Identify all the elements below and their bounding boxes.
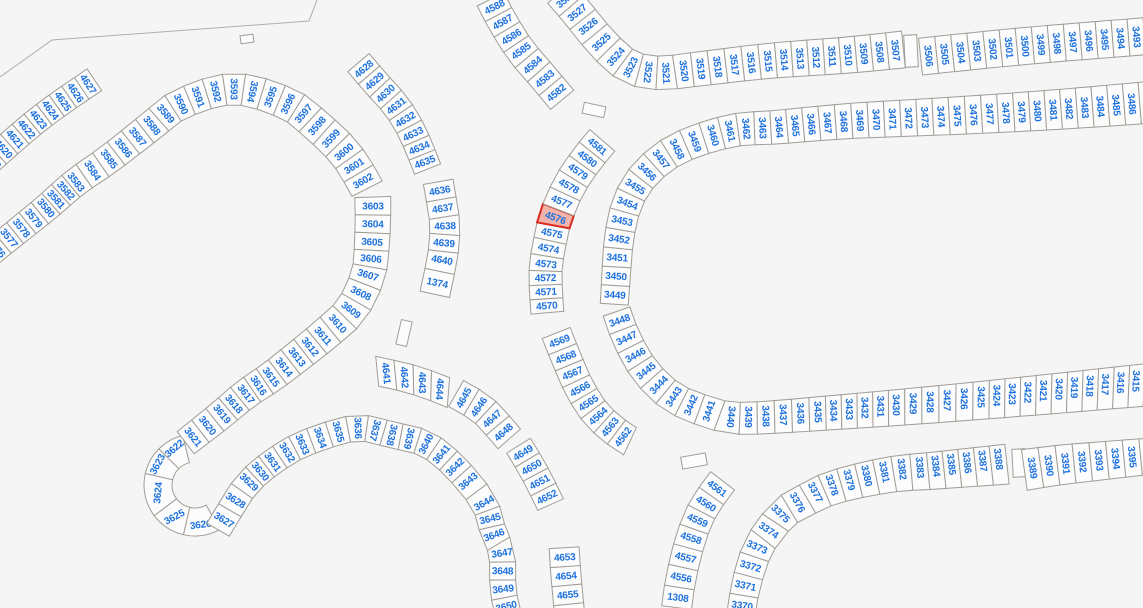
svg-text:3624: 3624 [152,481,165,504]
svg-text:3513: 3513 [793,47,806,70]
svg-text:3438: 3438 [759,405,770,427]
svg-text:3384: 3384 [928,455,941,478]
svg-text:3429: 3429 [907,393,918,415]
svg-text:3433: 3433 [843,398,854,420]
svg-text:3503: 3503 [969,40,982,63]
svg-text:3481: 3481 [1046,99,1059,122]
svg-text:3426: 3426 [958,388,969,410]
svg-text:3604: 3604 [362,219,384,231]
svg-text:3499: 3499 [1034,34,1047,57]
svg-text:4655: 4655 [557,589,580,602]
svg-text:3472: 3472 [902,107,914,130]
svg-text:3485: 3485 [1109,94,1122,117]
svg-text:4638: 4638 [434,221,456,233]
svg-text:3606: 3606 [360,253,383,266]
svg-text:3511: 3511 [825,45,838,67]
svg-text:3493: 3493 [1129,26,1142,49]
svg-text:3605: 3605 [361,237,384,249]
svg-text:3468: 3468 [837,110,850,133]
svg-text:4643: 4643 [416,372,427,394]
svg-text:3421: 3421 [1037,380,1048,402]
svg-text:3477: 3477 [983,103,995,126]
svg-text:3482: 3482 [1062,98,1075,121]
svg-text:3480: 3480 [1030,100,1042,123]
svg-text:3504: 3504 [953,41,966,64]
svg-text:4573: 4573 [535,258,558,271]
svg-text:4571: 4571 [535,287,557,299]
svg-text:3479: 3479 [1015,101,1027,124]
svg-text:3419: 3419 [1068,377,1080,399]
svg-text:3395: 3395 [1125,446,1138,469]
svg-text:3474: 3474 [934,106,946,129]
svg-text:3394: 3394 [1108,447,1121,470]
svg-text:3449: 3449 [604,290,627,302]
svg-text:3498: 3498 [1050,32,1063,55]
svg-text:4570: 4570 [536,300,559,313]
svg-text:3423: 3423 [1006,383,1017,405]
svg-text:3462: 3462 [739,118,752,141]
svg-text:3416: 3416 [1114,372,1126,395]
svg-text:3439: 3439 [742,406,753,428]
svg-text:3393: 3393 [1092,449,1105,472]
svg-text:3417: 3417 [1098,373,1110,395]
svg-text:3392: 3392 [1075,451,1088,474]
svg-text:3470: 3470 [869,109,881,132]
svg-text:3430: 3430 [890,394,901,416]
svg-text:3463: 3463 [756,117,768,139]
svg-text:3435: 3435 [811,401,823,423]
svg-text:4644: 4644 [433,378,445,401]
svg-text:3486: 3486 [1125,93,1138,116]
svg-text:3502: 3502 [985,38,998,61]
svg-text:3497: 3497 [1066,31,1079,54]
svg-text:3494: 3494 [1113,27,1126,50]
svg-text:3451: 3451 [606,252,629,264]
svg-text:3500: 3500 [1018,35,1031,58]
svg-text:3436: 3436 [794,402,806,424]
svg-text:3471: 3471 [886,108,898,131]
svg-text:4572: 4572 [535,273,557,284]
svg-text:3450: 3450 [605,271,628,283]
svg-text:3391: 3391 [1058,452,1071,475]
svg-text:3418: 3418 [1083,375,1095,397]
svg-text:3427: 3427 [941,390,952,412]
svg-text:3496: 3496 [1082,30,1095,53]
svg-text:3420: 3420 [1052,378,1064,400]
svg-text:3464: 3464 [772,116,785,139]
svg-text:3501: 3501 [1002,36,1015,59]
svg-text:3425: 3425 [975,386,986,408]
svg-text:3495: 3495 [1097,28,1110,51]
svg-text:3424: 3424 [990,385,1001,407]
svg-text:3437: 3437 [777,404,789,426]
svg-text:3514: 3514 [777,49,790,72]
svg-text:4642: 4642 [397,366,409,389]
svg-text:3428: 3428 [924,391,935,413]
svg-text:3431: 3431 [874,396,885,418]
svg-text:3478: 3478 [999,102,1011,125]
svg-text:3593: 3593 [228,78,239,100]
svg-text:3422: 3422 [1021,381,1032,403]
svg-text:3648: 3648 [492,566,514,577]
svg-text:3506: 3506 [921,45,934,68]
svg-text:3473: 3473 [918,106,930,129]
svg-text:3383: 3383 [913,456,926,479]
svg-text:3476: 3476 [967,104,979,127]
svg-text:3415: 3415 [1129,370,1141,393]
svg-text:3512: 3512 [809,46,821,69]
svg-text:4639: 4639 [433,237,456,250]
svg-text:3465: 3465 [788,114,801,137]
svg-text:4653: 4653 [554,552,577,564]
svg-text:4641: 4641 [379,362,392,385]
svg-text:3515: 3515 [761,50,774,73]
svg-text:3440: 3440 [724,405,737,428]
svg-text:3466: 3466 [804,113,817,136]
svg-text:3467: 3467 [820,112,833,135]
svg-text:3636: 3636 [351,417,363,439]
svg-text:4654: 4654 [555,570,578,583]
svg-text:3508: 3508 [872,41,885,64]
svg-text:3510: 3510 [841,44,854,67]
svg-text:3521: 3521 [659,62,671,85]
svg-text:3475: 3475 [950,105,962,128]
svg-text:3469: 3469 [853,109,865,132]
svg-text:3484: 3484 [1093,95,1106,118]
svg-text:3507: 3507 [888,39,901,62]
svg-text:3434: 3434 [827,400,838,422]
svg-text:3432: 3432 [858,397,869,419]
svg-text:3505: 3505 [937,43,950,66]
svg-text:3509: 3509 [857,42,870,65]
svg-text:3603: 3603 [362,201,384,212]
svg-text:3483: 3483 [1078,96,1091,119]
